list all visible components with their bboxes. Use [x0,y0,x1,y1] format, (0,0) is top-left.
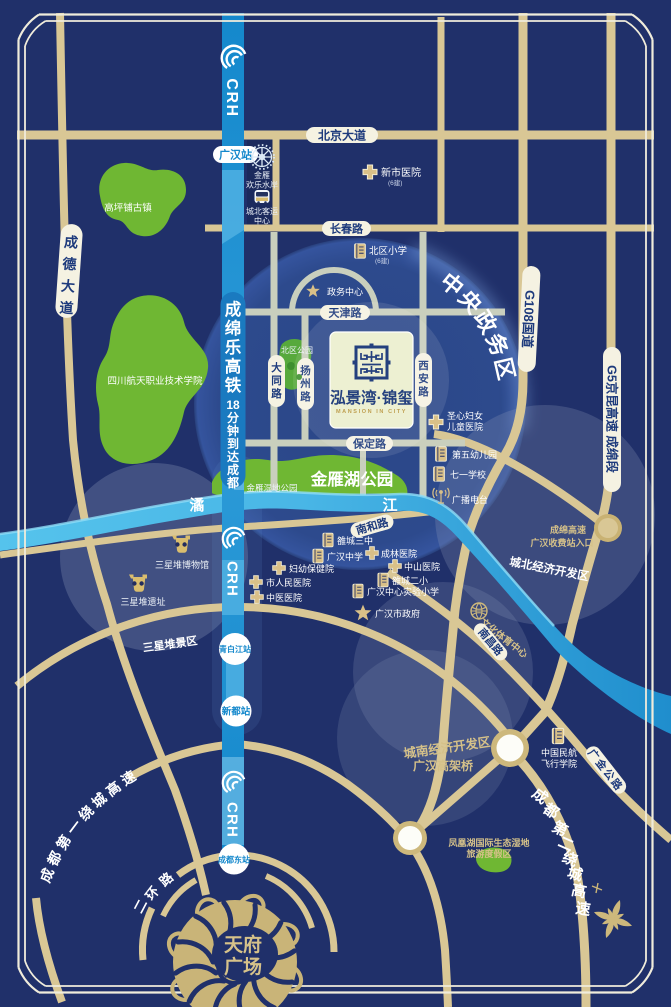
svg-text:旅游度假区: 旅游度假区 [466,848,511,859]
svg-text:广场: 广场 [224,955,262,978]
svg-text:成都东站: 成都东站 [218,855,250,865]
svg-text:飞行学院: 飞行学院 [541,758,577,769]
svg-text:潏: 潏 [189,497,204,514]
svg-text:凤凰湖国际生态湿地: 凤凰湖国际生态湿地 [448,837,529,848]
svg-text:金雁: 金雁 [254,170,270,180]
svg-text:中国民航: 中国民航 [541,747,577,758]
svg-text:新市医院: 新市医院 [381,166,421,179]
svg-text:大: 大 [271,361,282,374]
svg-text:北区小学: 北区小学 [369,245,407,257]
svg-text:成: 成 [227,462,239,477]
svg-text:到: 到 [227,436,239,451]
svg-text:儿童医院: 儿童医院 [447,421,483,432]
svg-text:铁: 铁 [225,375,242,395]
svg-text:G5京昆高速 成绵段: G5京昆高速 成绵段 [605,365,620,473]
svg-text:高: 高 [225,356,242,376]
svg-text:七一学校: 七一学校 [450,469,486,480]
svg-text:金雁湿地公园: 金雁湿地公园 [246,483,297,493]
svg-text:CRH: CRH [224,802,241,838]
svg-text:钟: 钟 [227,423,239,438]
svg-text:青白江站: 青白江站 [219,644,251,654]
svg-text:成绵高速: 成绵高速 [550,524,586,535]
svg-text:成林医院: 成林医院 [381,548,417,559]
svg-text:CRH: CRH [224,561,241,597]
svg-text:中医医院: 中医医院 [266,592,302,603]
svg-text:广汉中学: 广汉中学 [327,551,363,562]
svg-text:MANSION IN CITY: MANSION IN CITY [336,409,407,415]
svg-text:政务中心: 政务中心 [327,286,363,297]
svg-text:广汉高架桥: 广汉高架桥 [413,758,474,773]
svg-text:中山医院: 中山医院 [404,561,440,572]
svg-text:达: 达 [227,449,239,464]
svg-text:18: 18 [226,398,240,412]
svg-text:泓景湾·锦玺: 泓景湾·锦玺 [330,388,413,407]
svg-text:广汉收费站入口: 广汉收费站入口 [530,537,593,548]
svg-text:北京大道: 北京大道 [318,128,366,143]
svg-text:大: 大 [60,277,75,294]
svg-text:(6建): (6建) [375,256,389,265]
svg-text:分: 分 [227,410,239,425]
svg-text:乐: 乐 [225,338,242,357]
svg-text:(6建): (6建) [388,178,402,187]
svg-text:雒城二小: 雒城二小 [392,575,428,586]
svg-text:CRH: CRH [223,78,240,117]
svg-text:同: 同 [271,375,282,387]
svg-text:新都站: 新都站 [222,706,251,718]
svg-text:雒城三中: 雒城三中 [337,535,373,546]
svg-text:金雁湖公园: 金雁湖公园 [310,469,394,489]
svg-text:城北客运: 城北客运 [246,206,278,216]
svg-text:绵: 绵 [225,318,242,338]
svg-text:德: 德 [62,256,77,273]
svg-text:成: 成 [225,299,242,319]
svg-text:高坪铺古镇: 高坪铺古镇 [104,202,152,214]
svg-text:天府: 天府 [224,933,262,956]
svg-text:都: 都 [226,475,239,490]
svg-text:妇幼保健院: 妇幼保健院 [289,563,334,574]
svg-text:成: 成 [63,234,78,251]
svg-text:四川航天职业技术学院: 四川航天职业技术学院 [107,375,203,387]
svg-text:广汉站: 广汉站 [219,148,252,162]
svg-text:江: 江 [382,496,397,514]
svg-text:圣心妇女: 圣心妇女 [447,410,483,421]
svg-text:速: 速 [574,899,591,919]
svg-text:广播电台: 广播电台 [452,494,488,505]
svg-text:第五幼儿园: 第五幼儿园 [452,449,497,460]
svg-text:中心: 中心 [254,216,270,226]
svg-text:广汉市政府: 广汉市政府 [375,608,420,619]
svg-text:广汉中心实验小学: 广汉中心实验小学 [367,586,439,597]
svg-text:三星堆遗址: 三星堆遗址 [120,596,165,607]
svg-text:路: 路 [271,387,282,400]
svg-text:长春路: 长春路 [330,222,364,236]
svg-text:市人民医院: 市人民医院 [266,577,311,588]
svg-text:三星堆博物馆: 三星堆博物馆 [155,559,209,570]
svg-text:欢乐水岸: 欢乐水岸 [246,180,278,190]
svg-text:G108国道: G108国道 [520,290,538,349]
svg-text:道: 道 [59,299,74,316]
